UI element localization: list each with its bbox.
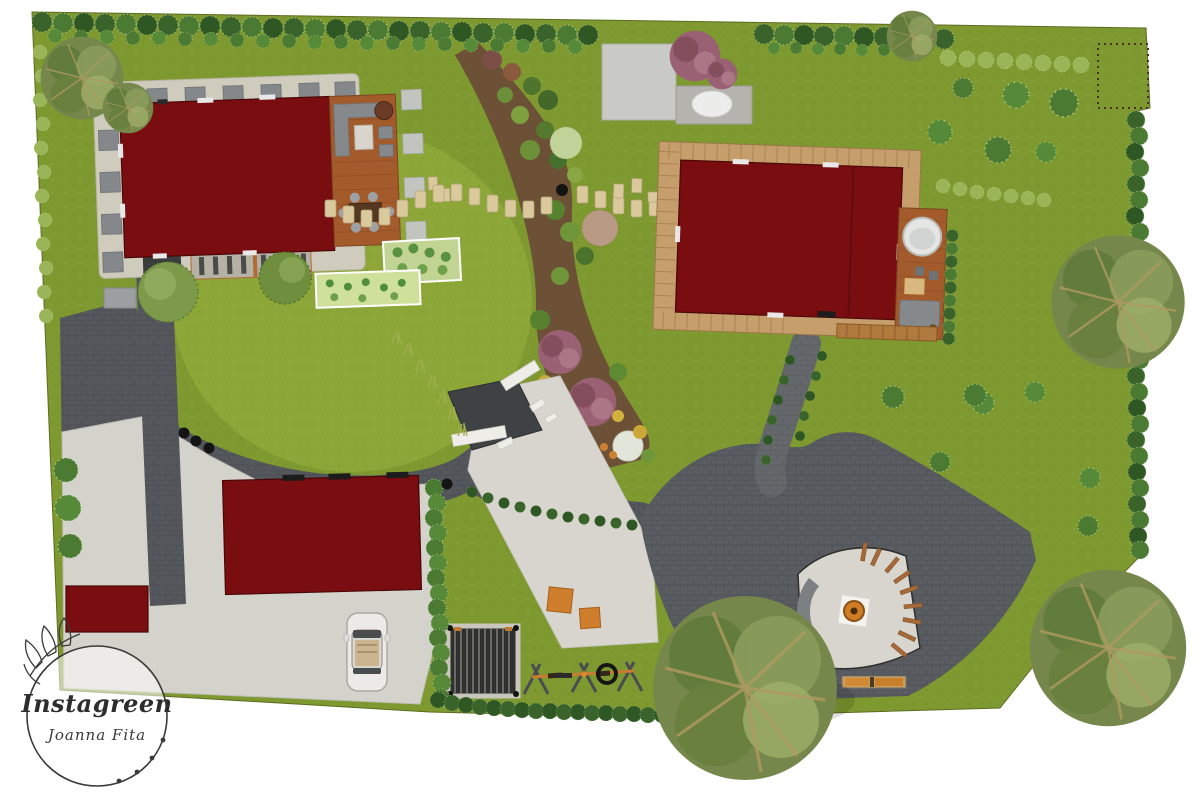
garden-plan-canvas: Instagreen Joanna Fita [0,0,1200,800]
second-house [609,140,962,345]
logo-brand: Instagreen [20,689,172,718]
car [344,613,390,691]
large-tree [1030,570,1186,726]
pergola [447,625,519,697]
fire-bowl [375,101,394,120]
large-tree [1051,235,1184,368]
pale-green-tree [550,127,582,159]
bin-pad [104,288,136,308]
armchair [378,126,392,138]
deck-steps [837,324,937,341]
ornamental-purple-tree [538,330,582,374]
path-light [556,184,568,196]
shed [66,586,148,632]
stone-oval [692,91,732,117]
fire-pit [838,595,870,627]
coffee-table [354,125,373,150]
armchair [379,144,393,156]
windshield [353,630,381,638]
large-tree [653,596,837,780]
swing-seat [556,673,572,678]
tan-tree [582,210,618,246]
concrete-pad [602,44,676,120]
garden-plan: Instagreen Joanna Fita [0,0,1200,800]
logo-author: Joanna Fita [45,726,146,744]
outdoor-rug [904,278,925,295]
garage [222,471,421,594]
second-house-roof [672,157,904,322]
deck-sofa [899,300,940,327]
sandbox [579,607,600,628]
garden-bench [842,676,906,688]
sandbox [547,587,573,613]
